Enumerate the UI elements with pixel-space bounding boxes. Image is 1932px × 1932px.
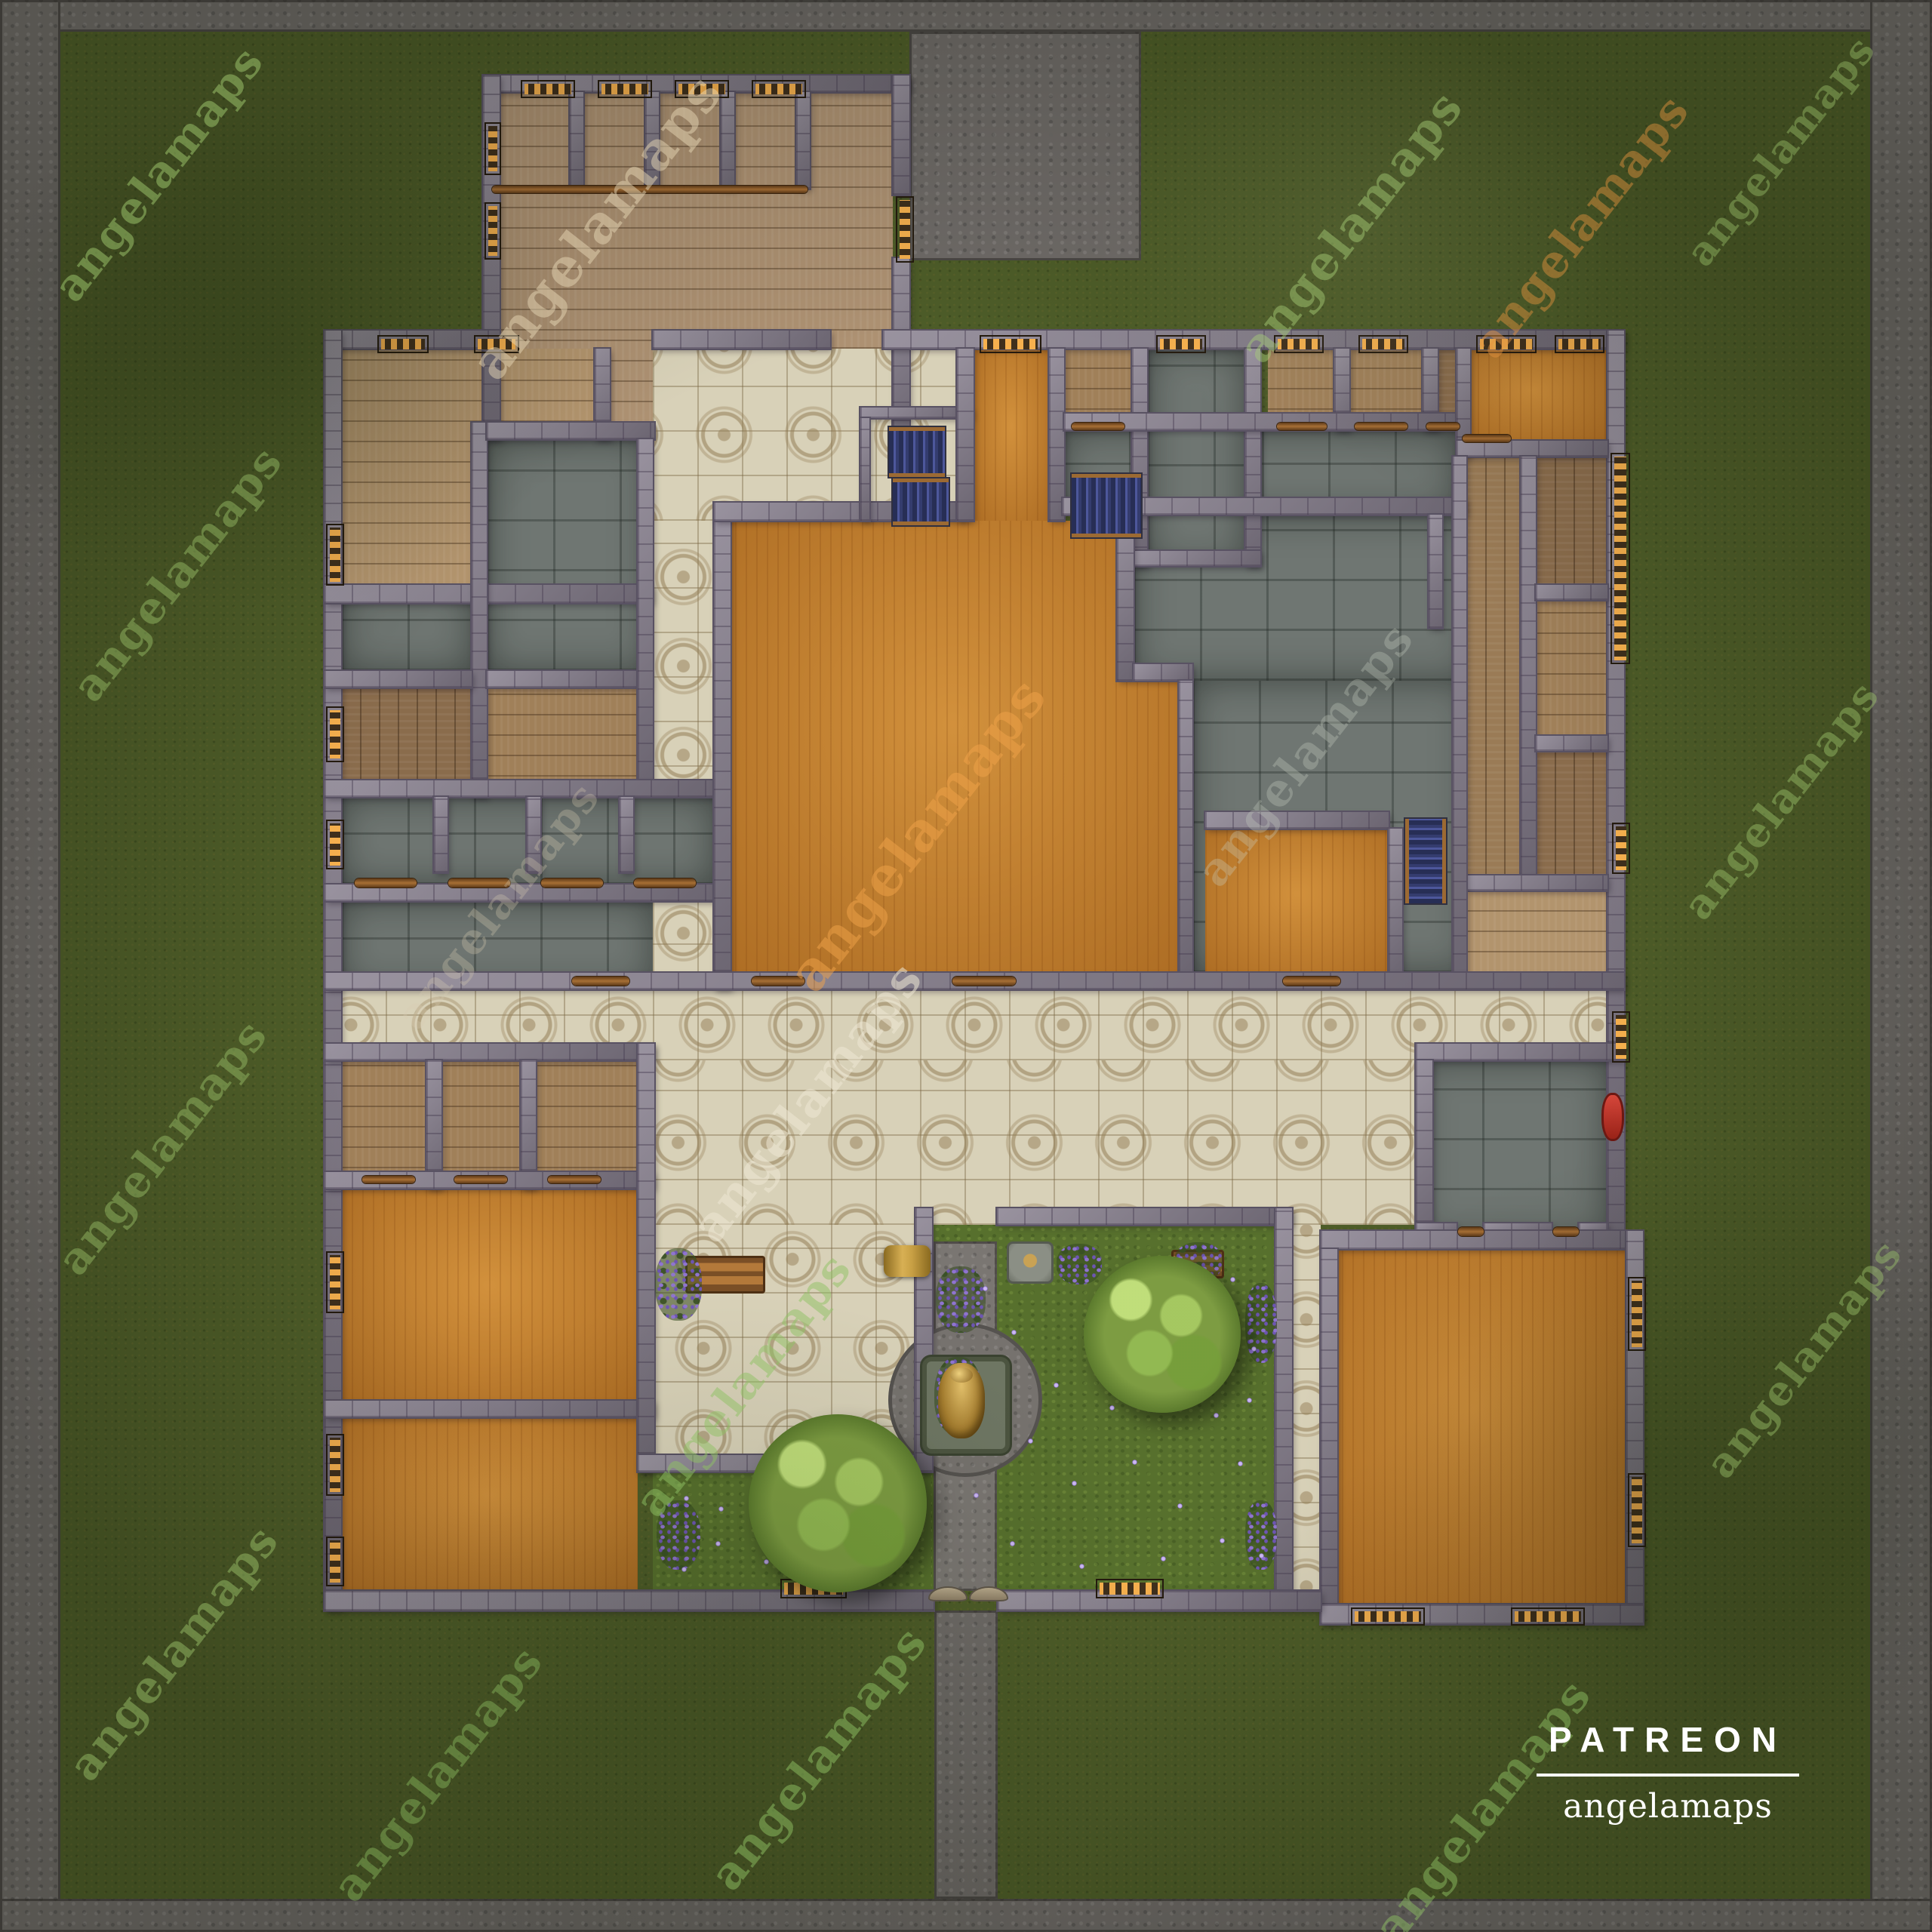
tree: [1084, 1256, 1241, 1413]
stone-wall: [721, 92, 734, 189]
stone-wall: [1205, 812, 1389, 829]
lit-doorway: [752, 80, 806, 98]
stone-wall: [325, 585, 653, 603]
stone-wall: [1245, 349, 1260, 566]
copper-rail-door: [548, 1176, 601, 1183]
lit-doorway: [980, 335, 1041, 353]
lit-doorway: [485, 202, 501, 260]
purple-flower: [1230, 1277, 1235, 1282]
purple-flower: [1177, 1503, 1183, 1509]
terracotta-floor: [1457, 349, 1607, 441]
lit-doorway: [1612, 1011, 1630, 1063]
purple-flower: [983, 1286, 988, 1291]
lit-doorway: [377, 335, 429, 353]
cobblestone-road: [0, 0, 60, 1932]
author-name: angelamaps: [1517, 1787, 1819, 1826]
cobblestone-road: [0, 0, 1932, 32]
watermark-text: angelamaps: [700, 1617, 937, 1900]
stone-wall: [1466, 875, 1607, 891]
terracotta-floor: [1205, 829, 1389, 973]
dark-wood-floor: [1536, 751, 1607, 875]
mosaic-tile-courtyard: [1292, 1225, 1321, 1592]
terracotta-floor: [341, 1189, 638, 1404]
watermark-text: angelamaps: [1228, 80, 1474, 373]
lit-doorway: [1274, 335, 1324, 353]
lit-doorway: [485, 122, 501, 175]
watermark-text: angelamaps: [1673, 672, 1889, 929]
lit-doorway: [896, 196, 914, 263]
lit-doorway: [598, 80, 652, 98]
purple-flower: [1238, 1461, 1243, 1466]
copper-rail-door: [1553, 1227, 1579, 1236]
lit-doorway: [1096, 1579, 1164, 1598]
purple-flower: [1220, 1538, 1225, 1543]
stone-slab-floor: [1416, 1060, 1607, 1240]
stone-wall: [325, 1401, 654, 1417]
lavender-bush: [657, 1500, 700, 1570]
stone-wall: [620, 797, 633, 872]
purple-flower: [1079, 1564, 1084, 1569]
lit-doorway: [326, 706, 344, 762]
lit-doorway: [1611, 453, 1630, 664]
stone-wall: [472, 423, 487, 797]
terracotta-floor: [1321, 1249, 1626, 1604]
stone-slab-floor: [1147, 349, 1245, 566]
copper-rail-door: [634, 878, 696, 888]
tree: [749, 1414, 927, 1592]
wood-corridor: [1466, 457, 1521, 875]
stone-wall: [487, 423, 654, 439]
lit-doorway: [474, 335, 519, 353]
copper-rail-door: [572, 977, 629, 986]
lit-doorway: [326, 1251, 344, 1313]
stone-wall: [1134, 664, 1192, 681]
mosaic-tile-courtyard: [653, 1060, 1416, 1225]
purple-flower: [974, 1493, 979, 1498]
wood-floor: [341, 1060, 638, 1189]
stable-floor: [500, 92, 893, 331]
copper-rail-door: [1355, 423, 1407, 430]
footer-credit: PATREON angelamaps: [1517, 1719, 1819, 1826]
lit-doorway: [326, 1537, 344, 1586]
watermark-text: angelamaps: [1462, 85, 1700, 368]
lit-doorway: [1555, 335, 1604, 353]
purple-flower: [1161, 1556, 1166, 1561]
lit-doorway: [1476, 335, 1537, 353]
lit-doorway: [521, 80, 575, 98]
blue-staircase: [1405, 819, 1446, 903]
stone-wall: [325, 671, 472, 688]
watermark-text: angelamaps: [1677, 27, 1884, 275]
purple-flower: [1251, 1346, 1257, 1352]
lavender-bush: [936, 1266, 986, 1333]
stone-wall: [487, 671, 649, 688]
copper-rail-door: [1277, 423, 1327, 430]
purple-flower: [681, 1567, 687, 1572]
red-shield: [1601, 1093, 1624, 1141]
cobblestone-road: [909, 32, 1141, 260]
stone-wall: [1457, 441, 1607, 457]
lit-doorway: [1511, 1607, 1585, 1626]
stone-wall: [1429, 515, 1442, 628]
lit-doorway: [1628, 1473, 1646, 1547]
copper-rail-door: [952, 977, 1016, 986]
bronze-statue: [938, 1363, 985, 1438]
purple-flower: [1247, 1398, 1252, 1403]
stone-wall: [434, 797, 448, 872]
stone-wall: [426, 1060, 441, 1189]
battle-map: PATREON angelamaps angelamapsangelamapsa…: [0, 0, 1932, 1932]
stone-wall: [1389, 829, 1402, 973]
gold-knight-statue: [884, 1245, 931, 1277]
garden-shrine: [1007, 1241, 1054, 1284]
copper-rail-door: [1283, 977, 1340, 986]
purple-flower: [1109, 1405, 1115, 1411]
stone-wall: [1521, 457, 1536, 875]
purple-flower: [1010, 1541, 1015, 1546]
stone-wall: [1416, 1044, 1624, 1060]
copper-rail-door: [454, 1176, 507, 1183]
purple-flower: [1028, 1438, 1033, 1444]
stone-wall: [645, 92, 659, 189]
lit-doorway: [1628, 1277, 1646, 1351]
lit-doorway: [326, 1434, 344, 1496]
lit-doorway: [1612, 823, 1630, 874]
blue-staircase: [1072, 474, 1141, 537]
light-wood-floor: [1466, 891, 1607, 973]
purple-flower: [1072, 1481, 1077, 1486]
copper-rail-door: [492, 186, 808, 193]
copper-rail-door: [541, 878, 603, 888]
blue-staircase: [889, 427, 945, 477]
lit-doorway: [326, 524, 344, 586]
stone-wall: [1321, 1249, 1337, 1623]
cobblestone-road: [1870, 0, 1932, 1932]
copper-rail-door: [448, 878, 510, 888]
purple-flower: [1214, 1413, 1219, 1418]
lavender-bush: [1245, 1283, 1277, 1363]
lavender-bush: [1245, 1500, 1277, 1570]
watermark-text: angelamaps: [322, 1636, 552, 1911]
cobblestone-road: [0, 1899, 1932, 1932]
blue-staircase: [893, 478, 949, 525]
purple-flower: [1259, 1553, 1264, 1558]
stone-wall: [638, 439, 653, 780]
purple-flower: [1011, 1330, 1017, 1335]
lavender-bush: [655, 1248, 702, 1321]
stone-wall: [325, 780, 714, 797]
purple-flower: [718, 1506, 724, 1512]
wood-floor: [1536, 600, 1607, 736]
patreon-label: PATREON: [1517, 1719, 1819, 1760]
stone-wall: [1132, 551, 1260, 566]
lit-doorway: [675, 80, 729, 98]
footer-divider: [1537, 1774, 1799, 1777]
stone-wall: [997, 1208, 1292, 1225]
stone-wall: [1453, 457, 1466, 973]
purple-flower: [764, 1559, 769, 1564]
stone-wall: [570, 92, 583, 189]
lit-doorway: [326, 820, 344, 869]
stone-wall: [325, 1044, 654, 1060]
terracotta-floor: [974, 349, 1049, 521]
stone-wall: [1179, 681, 1192, 973]
watermark-text: angelamaps: [43, 36, 273, 311]
cobblestone-road: [934, 1611, 998, 1899]
stone-wall: [1416, 1060, 1432, 1240]
stone-wall: [521, 1060, 536, 1189]
watermark-text: angelamaps: [58, 1515, 288, 1790]
stone-wall: [1536, 585, 1607, 600]
lit-doorway: [1156, 335, 1206, 353]
copper-rail-door: [1458, 1227, 1484, 1236]
stone-wall: [957, 349, 974, 521]
purple-flower: [715, 1541, 721, 1546]
purple-flower: [1054, 1383, 1059, 1388]
mosaic-tile-courtyard: [653, 521, 714, 989]
lit-doorway: [1351, 1607, 1425, 1626]
stone-wall: [1275, 1208, 1292, 1592]
stone-wall: [653, 331, 830, 349]
copper-rail-door: [752, 977, 804, 986]
purple-flower: [1132, 1460, 1137, 1465]
purple-flower: [684, 1496, 689, 1501]
lit-doorway: [1358, 335, 1408, 353]
watermark-text: angelamaps: [62, 436, 292, 711]
stone-wall: [860, 408, 972, 418]
stone-wall: [796, 92, 810, 189]
stone-wall: [1049, 349, 1064, 521]
stone-wall: [1117, 515, 1134, 681]
copper-rail-door: [355, 878, 417, 888]
terracotta-floor: [341, 1417, 638, 1591]
stone-wall: [1536, 736, 1607, 751]
watermark-text: angelamaps: [47, 1010, 277, 1284]
copper-rail-door: [1072, 423, 1124, 430]
copper-rail-door: [362, 1176, 415, 1183]
stone-wall: [638, 1044, 654, 1472]
lavender-bush: [1057, 1244, 1102, 1284]
stone-wall: [527, 797, 540, 872]
dark-wood-floor: [1536, 457, 1607, 585]
copper-rail-door: [1426, 423, 1460, 430]
stone-wall: [714, 503, 731, 989]
stone-slab-floor: [487, 439, 649, 671]
stone-wall: [893, 75, 909, 195]
copper-rail-door: [1463, 435, 1511, 442]
stone-wall: [860, 418, 869, 521]
